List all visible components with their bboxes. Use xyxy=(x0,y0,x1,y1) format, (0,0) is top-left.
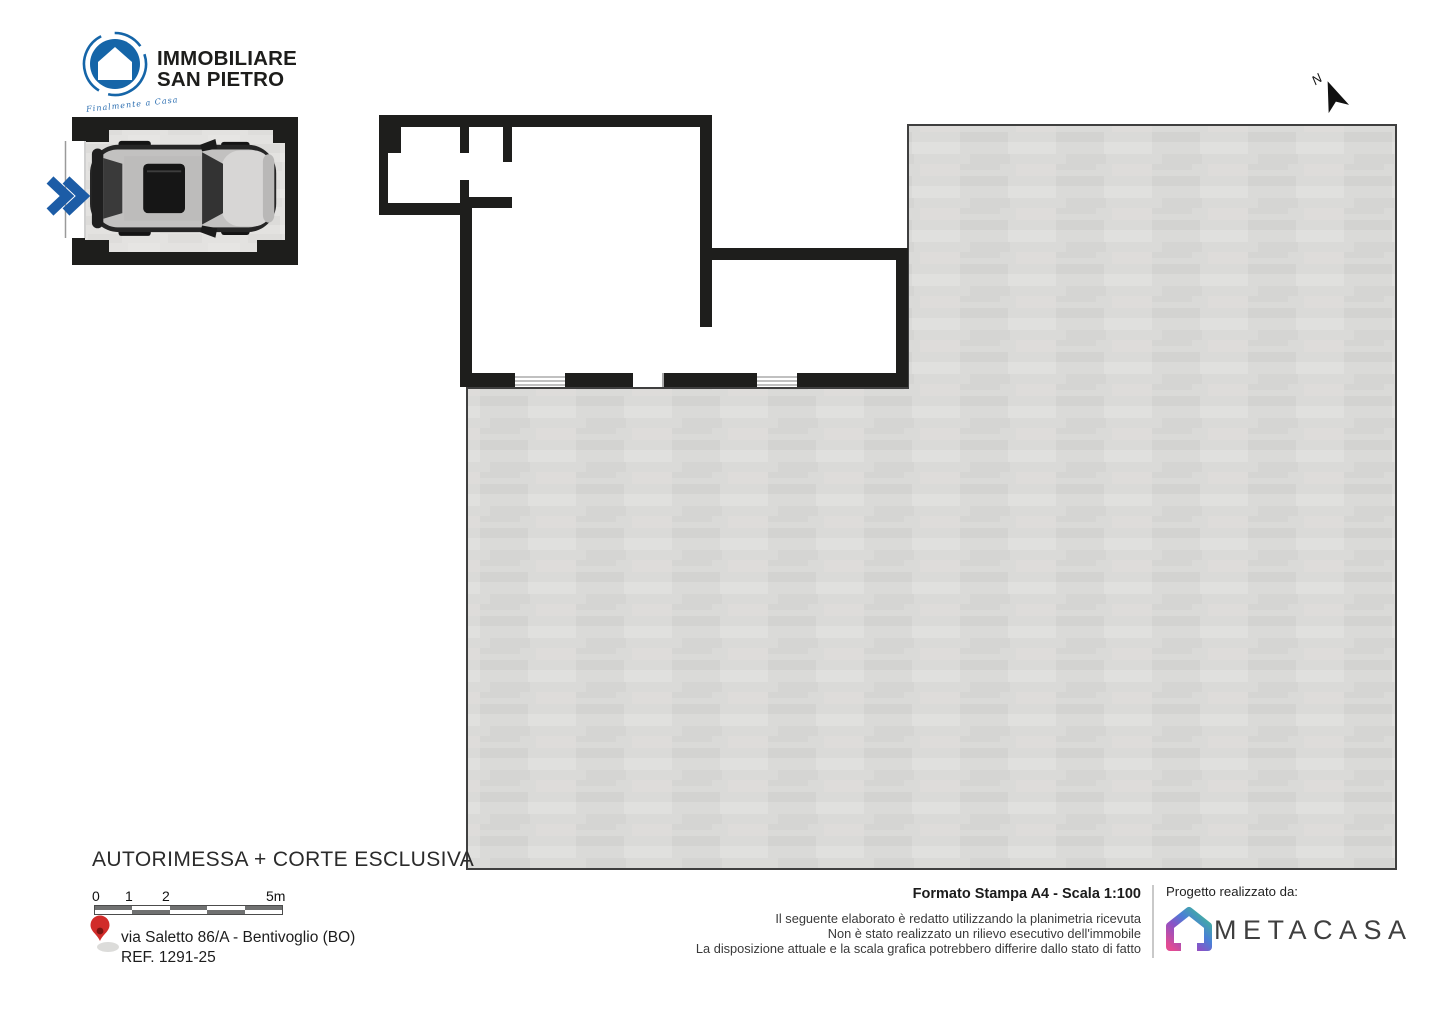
agency-name: IMMOBILIARE SAN PIETRO xyxy=(157,48,297,90)
scale-label-1: 1 xyxy=(125,888,133,904)
print-format: Formato Stampa A4 - Scala 1:100 xyxy=(913,886,1141,902)
address-line: via Saletto 86/A - Bentivoglio (BO) xyxy=(121,928,355,948)
disclaimer-line-3: La disposizione attuale e la scala grafi… xyxy=(696,941,1141,956)
plan-title: AUTORIMESSA + CORTE ESCLUSIVA xyxy=(92,848,474,872)
scale-label-0: 0 xyxy=(92,888,100,904)
disclaimer: Il seguente elaborato è redatto utilizza… xyxy=(696,911,1141,957)
location-pin-icon xyxy=(91,916,120,953)
reference-number: REF. 1291-25 xyxy=(121,948,355,968)
building-walls xyxy=(379,115,908,387)
agency-name-line2: SAN PIETRO xyxy=(157,69,297,90)
car-top-view xyxy=(90,139,276,238)
floorplan-page: N IMMOBILIARE SAN PIETRO Finalmente a Ca… xyxy=(0,0,1440,1018)
courtyard xyxy=(467,125,1396,869)
metacasa-logo: METACASA xyxy=(1164,905,1434,955)
entrance-arrow-icon xyxy=(50,180,83,212)
address-block: via Saletto 86/A - Bentivoglio (BO) REF.… xyxy=(121,928,355,968)
metacasa-wordmark: METACASA xyxy=(1214,915,1413,946)
north-arrow-icon: N xyxy=(1308,64,1349,115)
garage-plan xyxy=(50,117,298,265)
disclaimer-line-2: Non è stato realizzato un rilievo esecut… xyxy=(696,926,1141,941)
credit-label: Progetto realizzato da: xyxy=(1166,884,1298,899)
scale-label-5m: 5m xyxy=(266,888,285,904)
agency-header: IMMOBILIARE SAN PIETRO Finalmente a Casa xyxy=(80,28,400,118)
footer-divider xyxy=(1152,885,1154,958)
disclaimer-line-1: Il seguente elaborato è redatto utilizza… xyxy=(696,911,1141,926)
scale-bar: 0 1 2 5m xyxy=(92,888,292,918)
agency-name-line1: IMMOBILIARE xyxy=(157,48,297,69)
scale-bar-graphic xyxy=(94,905,283,915)
agency-tagline: Finalmente a Casa xyxy=(86,95,179,114)
scale-label-2: 2 xyxy=(162,888,170,904)
north-label: N xyxy=(1309,70,1326,88)
